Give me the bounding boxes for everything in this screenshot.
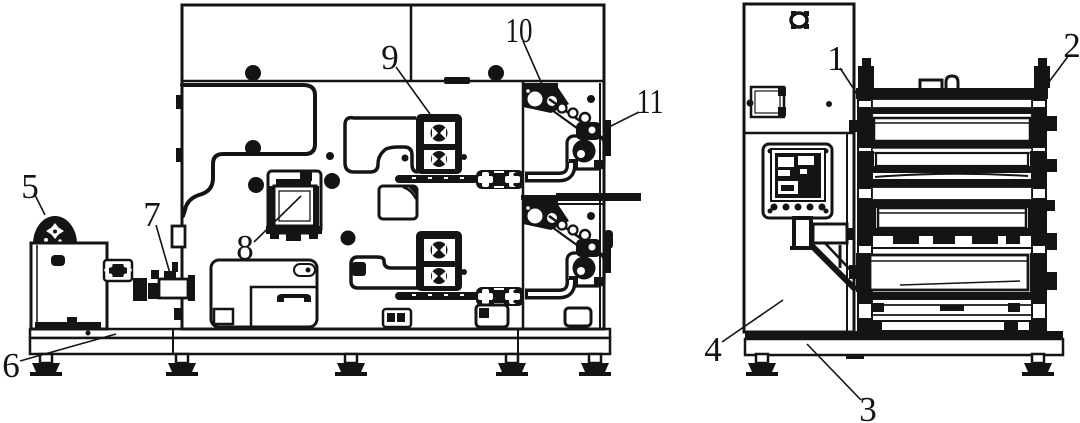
- svg-text:9: 9: [381, 38, 399, 77]
- svg-text:4: 4: [704, 330, 722, 369]
- svg-text:10: 10: [506, 11, 533, 50]
- svg-text:8: 8: [236, 228, 254, 267]
- svg-text:7: 7: [143, 195, 161, 234]
- svg-text:1: 1: [827, 39, 845, 78]
- svg-text:3: 3: [859, 390, 877, 423]
- svg-text:11: 11: [637, 82, 664, 121]
- svg-text:5: 5: [21, 167, 39, 206]
- svg-text:2: 2: [1063, 26, 1080, 65]
- svg-text:6: 6: [2, 346, 20, 385]
